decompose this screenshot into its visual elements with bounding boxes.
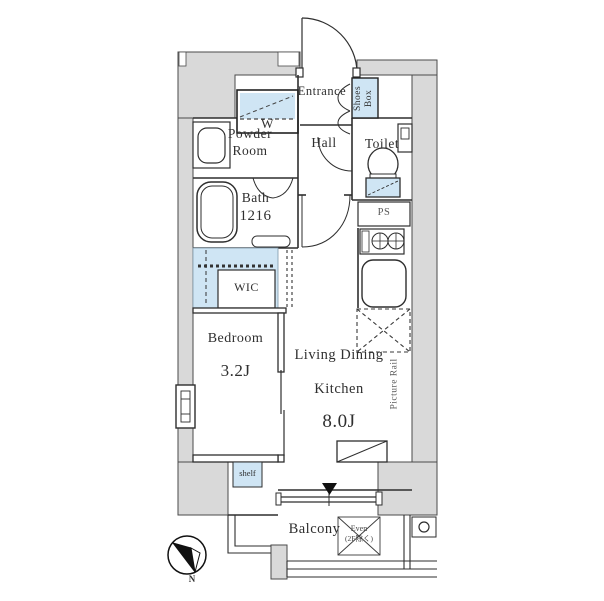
powder-room-label: Powder Room <box>205 126 295 160</box>
ldk-size-label: 8.0J <box>283 410 395 434</box>
wall-top-right <box>357 60 437 75</box>
kitchen-sink <box>362 260 406 307</box>
kitchen-stove <box>360 229 404 254</box>
entrance-label: Entrance <box>292 84 352 100</box>
picture-rail-label: Picture Rail <box>346 377 446 391</box>
door-jamb-right <box>353 68 360 77</box>
wall-right <box>412 75 437 515</box>
wall-bottom-right-block <box>378 462 437 515</box>
toilet-tank <box>366 178 400 197</box>
entrance-door-arc <box>302 18 357 73</box>
bedroom-size-label: 3.2J <box>193 360 278 381</box>
wall-left-lower <box>178 428 193 462</box>
bedroom-window <box>176 385 195 428</box>
ldk-label: Living Dining <box>283 346 395 364</box>
wall-left-upper <box>178 118 193 385</box>
entry-direction-triangle <box>322 483 337 495</box>
bath-label: Bath 1216 <box>218 190 293 226</box>
bedroom-south-wall <box>193 455 278 462</box>
bath-step <box>252 236 290 247</box>
wall-bottom-left-block <box>178 462 228 515</box>
balcony-step-block <box>271 545 287 579</box>
door-jamb-left <box>296 68 303 77</box>
ldk-counter <box>337 441 387 462</box>
bedroom-label: Bedroom <box>193 330 278 348</box>
floor-plan: Entrance Shoes Box W Powder Room Hall To… <box>0 0 604 601</box>
shoes-box-label: Shoes Box <box>345 85 385 111</box>
toilet-label: Toilet <box>352 136 412 153</box>
wic-label: WIC <box>218 280 275 295</box>
balcony-drain <box>412 517 436 537</box>
compass-icon <box>168 536 206 574</box>
hall-label: Hall <box>298 135 350 152</box>
shoes-closet-door-arc2 <box>338 111 350 134</box>
evac-hatch-label: Even (2F除く) <box>338 524 380 543</box>
compass-north-label: N <box>185 574 199 585</box>
shelf-label: shelf <box>233 468 262 479</box>
entrance-door <box>296 18 360 77</box>
wic-area <box>193 248 292 310</box>
pipe-space-label: PS <box>358 206 410 219</box>
wic-bedroom-wall <box>193 308 286 313</box>
toilet-fixture <box>366 124 412 197</box>
ldk-door-arc <box>302 195 350 247</box>
